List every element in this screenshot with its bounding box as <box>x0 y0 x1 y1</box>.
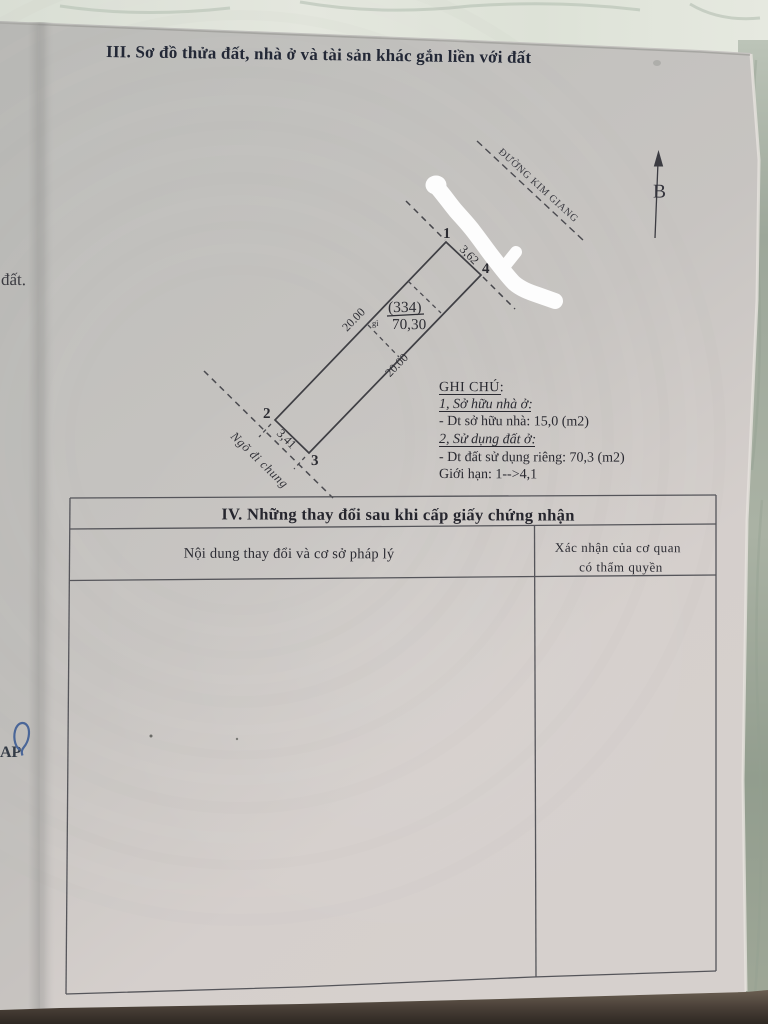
svg-text:3: 3 <box>311 453 319 469</box>
svg-text:Nội dung thay đổi và cơ sở phá: Nội dung thay đổi và cơ sở pháp lý <box>184 546 395 563</box>
svg-text:- Dt sở hữu nhà: 15,0 (m2): - Dt sở hữu nhà: 15,0 (m2) <box>439 414 589 430</box>
svg-text:AP: AP <box>0 744 22 761</box>
svg-text:có thẩm quyền: có thẩm quyền <box>579 559 663 574</box>
svg-text:B: B <box>653 182 666 203</box>
svg-text:1, Sở hữu nhà ở:: 1, Sở hữu nhà ở: <box>439 397 533 412</box>
svg-text:2: 2 <box>263 406 271 422</box>
svg-text:2, Sử dụng đất ở:: 2, Sử dụng đất ở: <box>439 432 536 447</box>
svg-text:gì: gì <box>372 318 379 328</box>
svg-text:đất.: đất. <box>1 270 26 289</box>
svg-text:Giới hạn: 1-->4,1: Giới hạn: 1-->4,1 <box>439 467 537 482</box>
svg-text:1: 1 <box>443 226 451 242</box>
svg-text:GHI CHÚ:: GHI CHÚ: <box>439 378 504 395</box>
svg-text:70,30: 70,30 <box>392 316 427 333</box>
svg-text:IV. Những thay đổi sau khi cấp: IV. Những thay đổi sau khi cấp giấy chứn… <box>221 504 574 524</box>
svg-text:- Dt đất sử dụng riêng: 70,3 (: - Dt đất sử dụng riêng: 70,3 (m2) <box>439 450 625 466</box>
svg-text:(334): (334) <box>388 299 422 316</box>
svg-text:Xác nhận của cơ quan: Xác nhận của cơ quan <box>555 540 681 555</box>
